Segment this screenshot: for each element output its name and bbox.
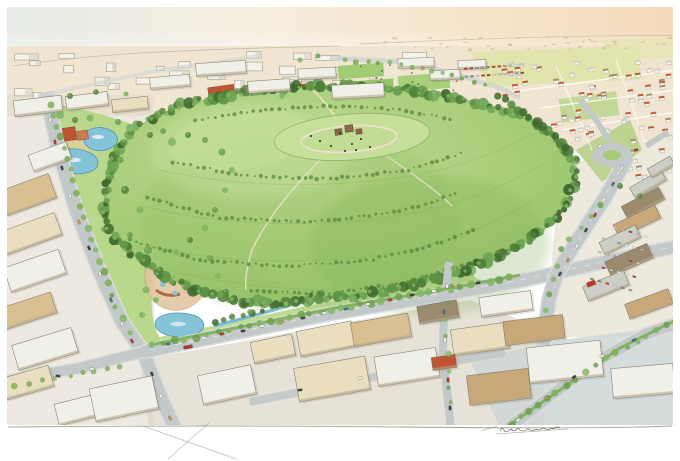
street-tree	[260, 309, 265, 314]
ring-tree-highlight	[142, 259, 145, 262]
shrub	[135, 241, 137, 243]
house	[553, 78, 559, 83]
house	[659, 85, 665, 90]
shrub	[251, 109, 255, 113]
street-tree	[538, 122, 547, 131]
ring-tree-highlight	[431, 92, 436, 97]
shrub	[234, 172, 238, 176]
shrub	[411, 205, 415, 209]
shrub	[240, 174, 243, 177]
house	[644, 102, 650, 107]
skyline-mark	[490, 48, 494, 50]
shrub	[348, 105, 352, 109]
street-tree	[525, 408, 532, 415]
house	[645, 84, 651, 89]
player-dot	[360, 65, 362, 67]
building	[332, 83, 387, 102]
shrub	[268, 289, 272, 293]
skyline-mark	[414, 47, 416, 48]
park-tree-highlight	[169, 139, 173, 143]
shrub	[224, 216, 228, 220]
street-tree	[376, 61, 380, 65]
parked-car	[520, 64, 524, 66]
park-tree-highlight	[186, 133, 189, 136]
shrub	[372, 258, 375, 261]
shrub	[418, 165, 421, 168]
street-tree	[353, 59, 359, 65]
shrub	[192, 258, 195, 261]
shrub	[254, 175, 256, 177]
street-tree	[449, 284, 453, 288]
street-tree	[507, 100, 515, 108]
building	[611, 363, 678, 400]
street-tree	[448, 287, 454, 293]
shrub	[427, 244, 431, 248]
street-tree	[267, 318, 274, 325]
street-tree	[446, 351, 452, 357]
roundabout-island	[603, 150, 621, 160]
skyline-mark	[463, 37, 465, 39]
house	[635, 174, 641, 179]
shrub	[180, 253, 184, 257]
parked-car	[464, 68, 468, 70]
street-tree	[180, 336, 187, 343]
parked-car	[470, 67, 474, 69]
ring-tree	[104, 198, 109, 203]
street-tree	[563, 382, 570, 389]
house	[600, 115, 606, 120]
shrub	[383, 170, 387, 174]
ring-tree	[104, 186, 111, 193]
park-tree-highlight	[280, 94, 283, 97]
shrub	[255, 262, 257, 264]
parked-car	[492, 74, 496, 76]
shrub	[366, 106, 368, 108]
shrub	[314, 177, 318, 181]
shrub	[265, 176, 268, 179]
shrub	[397, 209, 401, 213]
ring-tree-highlight	[381, 290, 384, 293]
park-tree-highlight	[128, 233, 131, 236]
shrub	[273, 219, 276, 222]
shrub	[328, 293, 331, 296]
park-tree-highlight	[137, 207, 140, 210]
shrub	[152, 198, 156, 202]
car	[447, 378, 449, 382]
ring-tree-highlight	[492, 256, 495, 259]
skyline-mark	[428, 37, 432, 39]
shrub	[223, 260, 227, 264]
ring-tree-highlight	[226, 93, 231, 98]
shrub	[314, 220, 316, 222]
parked-car	[492, 66, 496, 68]
house	[502, 68, 508, 73]
skyline-mark	[602, 47, 606, 49]
ring-tree-highlight	[313, 83, 316, 86]
skyline-mark	[668, 37, 673, 39]
skyline-mark	[614, 43, 617, 45]
shrub	[304, 176, 308, 180]
skyline-mark	[551, 44, 556, 45]
park-tree-highlight	[203, 138, 206, 141]
shrub	[290, 220, 292, 222]
shrub	[249, 217, 252, 220]
shrub	[375, 172, 379, 176]
street-tree	[238, 324, 243, 329]
shrub	[445, 155, 449, 159]
street-tree	[53, 124, 59, 130]
shrub	[392, 108, 394, 110]
street-tree	[574, 156, 580, 162]
player-dot	[375, 77, 377, 79]
shrub	[270, 107, 274, 111]
park-tree-highlight	[223, 188, 226, 191]
shrub	[418, 112, 422, 116]
park-tree-highlight	[638, 194, 640, 196]
street-tree	[278, 301, 283, 306]
park-tree-highlight	[148, 133, 151, 136]
shrub	[404, 208, 407, 211]
street-tree	[505, 273, 512, 280]
ring-tree-highlight	[568, 188, 572, 192]
street-tree	[582, 369, 589, 376]
street-tree	[566, 236, 572, 242]
shrub	[214, 116, 217, 119]
car	[444, 338, 446, 342]
skyline-mark	[578, 47, 581, 48]
shrub	[243, 216, 246, 219]
street-tree	[449, 73, 454, 78]
shrub	[293, 291, 296, 294]
shrub	[334, 106, 337, 109]
street-tree	[429, 68, 435, 74]
street-tree	[377, 297, 385, 305]
parked-car	[475, 67, 479, 69]
visitor-dot	[360, 138, 362, 140]
ring-tree	[135, 252, 143, 260]
street-tree	[593, 363, 598, 368]
shrub	[259, 109, 263, 113]
house	[568, 117, 574, 122]
shrub	[249, 289, 252, 292]
street-tree	[483, 83, 487, 87]
ring-tree-highlight	[308, 298, 313, 303]
shrub	[397, 252, 400, 255]
street-tree	[558, 246, 564, 252]
house	[575, 116, 581, 121]
shrub	[260, 264, 264, 268]
park-tree-highlight	[116, 120, 119, 123]
park-tree-highlight	[248, 310, 251, 313]
shrub	[140, 243, 142, 245]
house	[512, 84, 518, 89]
street-tree	[69, 167, 74, 172]
street-tree	[148, 341, 155, 348]
ring-tree-highlight	[104, 194, 108, 198]
shrub	[157, 198, 161, 202]
ring-tree-highlight	[479, 102, 483, 106]
shrub	[216, 259, 220, 263]
street-tree	[612, 349, 619, 356]
shrub	[413, 166, 415, 168]
shrub	[264, 108, 267, 111]
shrub	[185, 254, 189, 258]
shrub	[435, 159, 439, 163]
street-tree	[193, 334, 201, 342]
park-tree-highlight	[122, 187, 126, 191]
shrub	[329, 177, 332, 180]
house	[629, 97, 635, 102]
shrub	[182, 162, 185, 165]
city-building	[59, 53, 75, 58]
summit-shelter	[345, 125, 354, 133]
skyline-mark	[430, 48, 434, 49]
shrub	[395, 282, 398, 285]
street-tree	[229, 314, 235, 320]
car	[432, 290, 437, 293]
ring-tree-highlight	[164, 112, 168, 116]
ring-tree-highlight	[192, 102, 197, 107]
player-dot	[380, 78, 382, 80]
shrub	[303, 105, 307, 109]
street-tree	[212, 319, 219, 326]
house	[561, 114, 567, 119]
house	[522, 81, 528, 86]
skyline-mark	[656, 43, 659, 44]
parked-car	[476, 75, 480, 77]
shrub	[409, 249, 413, 253]
shrub	[265, 263, 268, 266]
skyline-mark	[469, 50, 471, 52]
shrub	[274, 290, 278, 294]
house	[630, 139, 636, 144]
skyline-mark	[517, 37, 521, 38]
summit-shelter	[356, 129, 362, 134]
shrub	[453, 235, 457, 239]
ring-tree	[178, 279, 184, 285]
ring-tree	[315, 81, 326, 92]
house	[603, 68, 609, 73]
house	[635, 72, 641, 77]
shrub	[365, 173, 369, 177]
car	[446, 284, 448, 288]
shrub	[398, 108, 401, 111]
ring-tree-highlight	[397, 285, 401, 289]
car	[388, 299, 393, 302]
ring-tree-highlight	[386, 87, 390, 91]
shrub	[202, 166, 206, 170]
shrub	[430, 160, 434, 164]
player-dot	[452, 89, 454, 91]
street-tree	[318, 290, 325, 297]
shrub	[327, 218, 331, 222]
shrub	[262, 289, 266, 293]
shrub	[297, 176, 301, 180]
ring-tree-highlight	[122, 139, 125, 142]
park-tree-highlight	[57, 112, 61, 116]
shrub	[410, 110, 414, 114]
shrub	[260, 218, 262, 220]
shrub	[423, 113, 425, 115]
shrub	[395, 170, 397, 172]
park-tree-highlight	[298, 58, 300, 60]
ring-tree-highlight	[171, 276, 174, 279]
shrub	[241, 262, 243, 264]
ring-tree-highlight	[426, 280, 429, 283]
street-tree	[417, 289, 425, 297]
park-tree-highlight	[127, 125, 131, 129]
city-building	[280, 66, 295, 75]
ring-tree-highlight	[405, 89, 408, 92]
street-tree	[88, 237, 94, 243]
shrub	[377, 255, 381, 259]
house	[659, 148, 665, 153]
ring-tree-highlight	[113, 236, 117, 240]
ring-tree	[103, 218, 110, 225]
park-tree-highlight	[213, 208, 216, 211]
shrub	[272, 175, 276, 179]
ring-tree-highlight	[230, 297, 234, 301]
pond-upper	[84, 128, 118, 151]
skyline-mark	[398, 42, 403, 43]
parked-car	[520, 72, 524, 74]
skyline-mark	[578, 46, 583, 47]
shrub	[236, 218, 239, 221]
ring-tree	[377, 289, 385, 297]
house	[584, 125, 590, 130]
shrub	[168, 249, 172, 253]
house	[635, 60, 641, 65]
street-tree	[399, 62, 403, 66]
park-tree-highlight	[143, 287, 146, 290]
shrub	[358, 215, 360, 217]
street-tree	[357, 301, 363, 307]
ring-tree-highlight	[462, 97, 465, 100]
ring-tree-highlight	[463, 269, 466, 272]
shrub	[291, 105, 295, 109]
shrub	[259, 174, 263, 178]
shrub	[212, 214, 215, 217]
shrub	[320, 219, 323, 222]
street-tree	[544, 130, 550, 136]
shrub	[254, 219, 257, 222]
shrub	[430, 201, 433, 204]
shrub	[282, 291, 284, 293]
street-tree	[643, 334, 649, 340]
shrub	[309, 175, 313, 179]
skyline-mark	[588, 38, 591, 40]
car	[476, 282, 481, 285]
skyline-mark	[548, 37, 550, 38]
shrub	[321, 176, 324, 179]
street-tree	[119, 314, 126, 321]
street-tree	[555, 263, 561, 269]
shrub	[296, 106, 299, 109]
park-tree-highlight	[230, 168, 233, 171]
street-tree	[467, 280, 475, 288]
parked-car	[481, 75, 485, 77]
shrub	[347, 288, 351, 292]
ring-tree-highlight	[507, 250, 511, 254]
shrub	[220, 170, 224, 174]
shrub	[218, 217, 222, 221]
ring-tree-highlight	[181, 284, 184, 287]
shrub	[255, 289, 259, 293]
street-tree	[309, 293, 314, 298]
shrub	[341, 104, 345, 108]
ring-tree-highlight	[246, 298, 251, 303]
shrub	[471, 228, 475, 232]
park-tree-highlight	[145, 247, 149, 251]
visitor-dot	[310, 135, 312, 137]
ring-tree	[101, 227, 106, 232]
house	[588, 67, 594, 72]
skyline-mark	[563, 37, 568, 39]
shrub	[335, 177, 339, 181]
house	[638, 98, 644, 103]
car	[449, 406, 451, 410]
street-tree	[546, 291, 552, 297]
ring-tree-highlight	[122, 248, 126, 252]
house	[579, 92, 585, 97]
shrub	[328, 104, 332, 108]
shrub	[230, 260, 232, 262]
park-tree-highlight	[124, 92, 126, 94]
house	[648, 126, 654, 131]
city-building-side	[29, 54, 38, 60]
house	[639, 125, 645, 130]
ring-tree-highlight	[197, 290, 200, 293]
skyline-mark	[582, 41, 584, 43]
shrub	[230, 216, 234, 220]
car	[410, 294, 415, 297]
street-tree	[551, 132, 559, 140]
shrub	[201, 118, 204, 121]
shrub	[333, 218, 337, 222]
street-tree	[597, 202, 603, 208]
street-tree	[286, 314, 293, 321]
ring-tree-highlight	[553, 215, 557, 219]
street-tree	[101, 268, 109, 276]
street-tree	[77, 203, 84, 210]
shrub	[374, 107, 377, 110]
street-tree	[269, 303, 275, 309]
street-tree	[80, 370, 85, 375]
shrub	[204, 259, 207, 262]
shrub	[298, 265, 301, 268]
shrub	[442, 116, 446, 120]
street-tree	[451, 266, 457, 272]
house	[575, 109, 581, 114]
house	[551, 123, 557, 128]
park-tree-highlight	[106, 170, 109, 173]
street-tree	[551, 276, 556, 281]
park-tree-highlight	[73, 118, 76, 121]
shrub	[347, 261, 351, 265]
street-tree	[306, 311, 312, 317]
street-tree	[348, 304, 355, 311]
house	[625, 112, 631, 117]
shrub	[435, 115, 437, 117]
ring-tree-highlight	[134, 125, 138, 129]
ring-tree-highlight	[109, 156, 113, 160]
house	[626, 74, 632, 79]
shrub	[368, 214, 372, 218]
street-tree	[62, 146, 67, 151]
parked-car	[514, 64, 518, 66]
street-tree	[328, 307, 335, 314]
shrub	[360, 105, 364, 109]
